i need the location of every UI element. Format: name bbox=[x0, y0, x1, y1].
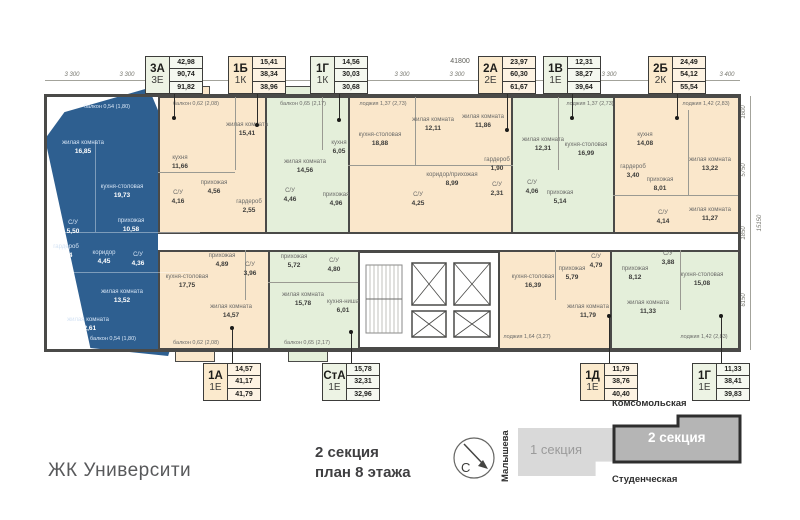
unit-total-area: 91,82 bbox=[170, 82, 202, 93]
unit-living-area: 24,49 bbox=[673, 57, 705, 69]
unit-type: 1А bbox=[208, 371, 223, 383]
leader-dot bbox=[607, 314, 611, 318]
leader-line bbox=[351, 332, 352, 363]
unit-area: 38,34 bbox=[253, 69, 285, 81]
plan-title: 2 секция план 8 этажа bbox=[315, 443, 411, 482]
unit-living-area: 11,79 bbox=[605, 364, 637, 376]
plan-title-line2: план 8 этажа bbox=[315, 463, 411, 483]
leader-line bbox=[609, 316, 610, 363]
leader-line bbox=[257, 94, 258, 125]
dimension-label: 3 300 bbox=[601, 72, 616, 78]
leader-dot bbox=[675, 116, 679, 120]
unit-living-area: 12,31 bbox=[568, 57, 600, 69]
unit-class: 1К bbox=[235, 75, 246, 86]
dimension-label: 3 300 bbox=[119, 72, 134, 78]
unit-card-3a[interactable]: 3А3Е 42,9890,7491,82 bbox=[145, 56, 203, 94]
stairs-elevator-core bbox=[358, 251, 500, 349]
wall bbox=[680, 250, 681, 310]
leader-dot bbox=[172, 116, 176, 120]
wall bbox=[245, 250, 246, 300]
unit-type: 1Г bbox=[316, 64, 329, 76]
dimension-label: 3 300 bbox=[394, 72, 409, 78]
unit-area: 32,31 bbox=[347, 376, 379, 388]
unit-type: 2А bbox=[483, 64, 498, 76]
unit-area: 60,30 bbox=[503, 69, 535, 81]
unit-living-area: 15,41 bbox=[253, 57, 285, 69]
unit-living-area: 23,97 bbox=[503, 57, 535, 69]
unit-living-area: 14,56 bbox=[335, 57, 367, 69]
unit-class: 3Е bbox=[151, 75, 163, 86]
unit-class: 2Е bbox=[484, 75, 496, 86]
floorplan-page: 41800 3 300 3 300 3 600 3 600 6 000 3 30… bbox=[0, 0, 800, 520]
dimension-label: 3 300 bbox=[449, 72, 464, 78]
unit-class: 1Е bbox=[698, 382, 710, 393]
dimension-label: 6150 bbox=[741, 293, 747, 306]
unit-type: 1В bbox=[548, 64, 563, 76]
unit-living-area: 42,98 bbox=[170, 57, 202, 69]
leader-line bbox=[507, 94, 508, 130]
section-2-label: 2 секция bbox=[648, 430, 706, 445]
wall bbox=[688, 110, 689, 195]
apartment-1g-top[interactable] bbox=[265, 96, 350, 234]
unit-card-1b[interactable]: 1Б1К 15,4138,3438,96 bbox=[228, 56, 286, 94]
unit-area: 38,76 bbox=[605, 376, 637, 388]
leader-line bbox=[572, 94, 573, 118]
dimension-overall-right: 15150 bbox=[757, 215, 763, 232]
corridor bbox=[158, 232, 740, 252]
dimension-overall-top: 41800 bbox=[450, 58, 469, 65]
unit-total-area: 40,40 bbox=[605, 389, 637, 400]
unit-type: 3А bbox=[150, 64, 165, 76]
unit-area: 38,27 bbox=[568, 69, 600, 81]
wall bbox=[322, 96, 323, 150]
street-studencheskaya: Студенческая bbox=[612, 474, 677, 485]
apartment-sta[interactable] bbox=[268, 250, 360, 350]
apartment-1a[interactable] bbox=[158, 250, 270, 350]
wall bbox=[95, 140, 96, 232]
unit-total-area: 39,83 bbox=[717, 389, 749, 400]
unit-total-area: 55,54 bbox=[673, 82, 705, 93]
balcony-shape bbox=[288, 350, 328, 362]
unit-type: 1Д bbox=[585, 371, 600, 383]
compass: С bbox=[448, 432, 502, 486]
leader-line bbox=[232, 328, 233, 363]
unit-class: 1Е bbox=[586, 382, 598, 393]
unit-card-1v[interactable]: 1В1Е 12,3138,2739,64 bbox=[543, 56, 601, 94]
unit-total-area: 32,96 bbox=[347, 389, 379, 400]
unit-card-1d[interactable]: 1Д1Е 11,7938,7640,40 bbox=[580, 363, 638, 401]
unit-card-2a[interactable]: 2А2Е 23,9760,3061,67 bbox=[478, 56, 536, 94]
leader-dot bbox=[255, 123, 259, 127]
unit-type: 1Б bbox=[233, 64, 248, 76]
leader-line bbox=[339, 94, 340, 120]
wall bbox=[268, 282, 360, 283]
unit-type: 1Г bbox=[698, 371, 711, 383]
section-1-block[interactable]: 1 секция bbox=[518, 428, 615, 476]
unit-living-area: 14,57 bbox=[228, 364, 260, 376]
wall bbox=[55, 232, 200, 233]
unit-living-area: 11,33 bbox=[717, 364, 749, 376]
unit-class: 2К bbox=[655, 75, 666, 86]
wall bbox=[613, 195, 740, 196]
leader-dot bbox=[570, 116, 574, 120]
unit-area: 90,74 bbox=[170, 69, 202, 81]
unit-class: 1Е bbox=[209, 382, 221, 393]
unit-area: 41,17 bbox=[228, 376, 260, 388]
unit-total-area: 38,96 bbox=[253, 82, 285, 93]
unit-type: СтА bbox=[323, 371, 345, 383]
dimension-label: 1600 bbox=[741, 105, 747, 118]
dimension-line-right bbox=[750, 96, 751, 350]
project-title: ЖК Университи bbox=[48, 460, 191, 482]
wall bbox=[558, 96, 559, 170]
section-1-label: 1 секция bbox=[530, 442, 582, 457]
wall bbox=[348, 165, 513, 166]
unit-area: 38,41 bbox=[717, 376, 749, 388]
unit-area: 54,12 bbox=[673, 69, 705, 81]
apartment-1v[interactable] bbox=[511, 96, 615, 234]
plan-title-line1: 2 секция bbox=[315, 443, 411, 463]
leader-dot bbox=[337, 118, 341, 122]
leader-line bbox=[677, 94, 678, 118]
unit-total-area: 30,68 bbox=[335, 82, 367, 93]
unit-total-area: 61,67 bbox=[503, 82, 535, 93]
dimension-label: 5750 bbox=[741, 163, 747, 176]
wall bbox=[555, 250, 556, 300]
leader-dot bbox=[230, 326, 234, 330]
unit-type: 2Б bbox=[653, 64, 668, 76]
unit-total-area: 39,64 bbox=[568, 82, 600, 93]
unit-card-1g-top[interactable]: 1Г1К 14,5630,0330,68 bbox=[310, 56, 368, 94]
leader-line bbox=[174, 94, 175, 118]
street-malysheva: Малышева bbox=[500, 430, 511, 482]
unit-living-area: 15,78 bbox=[347, 364, 379, 376]
unit-area: 30,03 bbox=[335, 69, 367, 81]
leader-line bbox=[721, 316, 722, 363]
unit-class: 1Е bbox=[549, 75, 561, 86]
wall bbox=[158, 172, 235, 173]
unit-card-1g-bottom[interactable]: 1Г1Е 11,3338,4139,83 bbox=[692, 363, 750, 401]
wall bbox=[415, 96, 416, 165]
dimension-label: 3 300 bbox=[64, 72, 79, 78]
dimension-label: 3 400 bbox=[719, 72, 734, 78]
leader-dot bbox=[719, 314, 723, 318]
wall bbox=[62, 272, 190, 273]
unit-total-area: 41,79 bbox=[228, 389, 260, 400]
dimension-label: 1850 bbox=[741, 226, 747, 239]
unit-class: 1К bbox=[317, 75, 328, 86]
compass-north-letter: С bbox=[461, 460, 470, 475]
wall bbox=[235, 96, 236, 170]
unit-class: 1Е bbox=[328, 382, 340, 393]
unit-card-1a[interactable]: 1А1Е 14,5741,1741,79 bbox=[203, 363, 261, 401]
balcony-shape bbox=[175, 350, 215, 362]
leader-dot bbox=[505, 128, 509, 132]
unit-card-2b[interactable]: 2Б2К 24,4954,1255,54 bbox=[648, 56, 706, 94]
unit-card-sta[interactable]: СтА1Е 15,7832,3132,96 bbox=[322, 363, 380, 401]
leader-dot bbox=[349, 330, 353, 334]
